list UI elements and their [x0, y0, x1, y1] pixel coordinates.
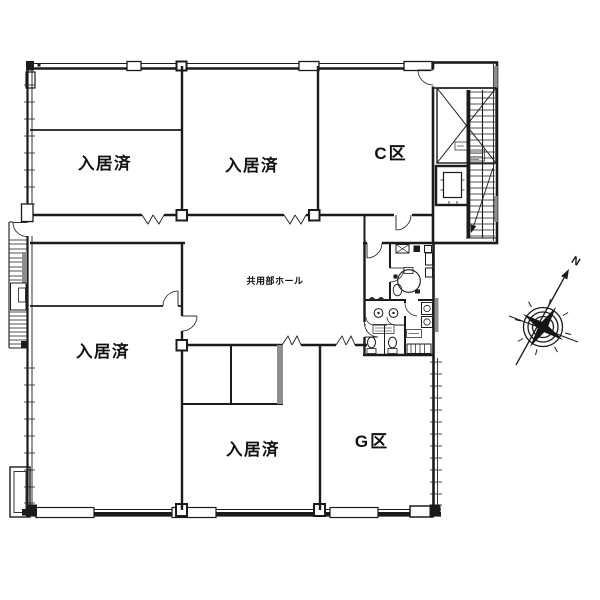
wc-bowl — [393, 284, 402, 296]
room-label-g-zone: G区 — [355, 432, 389, 451]
accessible-wc-circle — [398, 270, 421, 293]
shaded-wall — [494, 66, 498, 88]
room-labels: 入居済 入居済 C区 共用部ホール 入居済 入居済 G区 — [76, 144, 408, 459]
top-wall — [26, 61, 433, 88]
sub-rooms — [183, 345, 283, 404]
room-label-hall: 共用部ホール — [246, 275, 303, 286]
double-door — [284, 215, 306, 224]
door-arc — [396, 215, 411, 230]
column — [309, 210, 320, 221]
toilet-block — [363, 243, 434, 355]
double-door — [282, 336, 301, 345]
door-arc — [418, 70, 433, 85]
elevator — [436, 166, 469, 206]
shaded-wall — [22, 252, 27, 284]
compass-rose: N — [509, 254, 582, 365]
room-label-top-left: 入居済 — [78, 153, 132, 173]
door-arc — [405, 303, 417, 316]
shaded-wall — [277, 345, 283, 404]
door-arc — [163, 291, 178, 306]
wc-bowl — [368, 337, 376, 348]
urinal-row — [407, 344, 431, 354]
floor-plan-image: N 入居済 入居済 C区 共用部ホール 入居済 入居済 G区 — [0, 0, 600, 600]
floor-plan-page: N 入居済 入居済 C区 共用部ホール 入居済 入居済 G区 — [0, 0, 600, 600]
north-arrow-head — [561, 269, 569, 280]
elevator-car — [444, 173, 462, 198]
fixture — [422, 303, 433, 315]
column — [177, 340, 188, 351]
fire-escape-stairs — [9, 204, 34, 348]
room-label-c-zone: C区 — [374, 144, 407, 163]
door-arc — [367, 243, 382, 258]
fixture — [422, 317, 433, 328]
fixture — [426, 253, 433, 265]
compass-star — [510, 294, 576, 360]
corner-column — [430, 505, 441, 517]
window-ticks — [430, 362, 442, 505]
door-arc — [182, 316, 197, 331]
stall-door-arc — [387, 317, 395, 325]
stall-door-arc — [366, 317, 374, 325]
room-label-bottom-left: 入居済 — [76, 341, 130, 361]
room-label-top-center: 入居済 — [225, 155, 279, 175]
label-box — [373, 325, 394, 334]
stair-treads — [9, 312, 27, 344]
bottom-wall — [26, 504, 441, 518]
double-door — [142, 215, 164, 224]
fixture — [426, 268, 433, 277]
right-wall — [430, 243, 442, 516]
north-label: N — [569, 254, 582, 268]
column — [177, 210, 188, 221]
staircase — [466, 90, 496, 238]
shaded-wall — [435, 298, 439, 332]
room-label-bottom-center: 入居済 — [226, 439, 280, 459]
stair-arrow — [471, 224, 477, 233]
wc-bowl — [389, 337, 397, 348]
double-door — [336, 336, 355, 345]
